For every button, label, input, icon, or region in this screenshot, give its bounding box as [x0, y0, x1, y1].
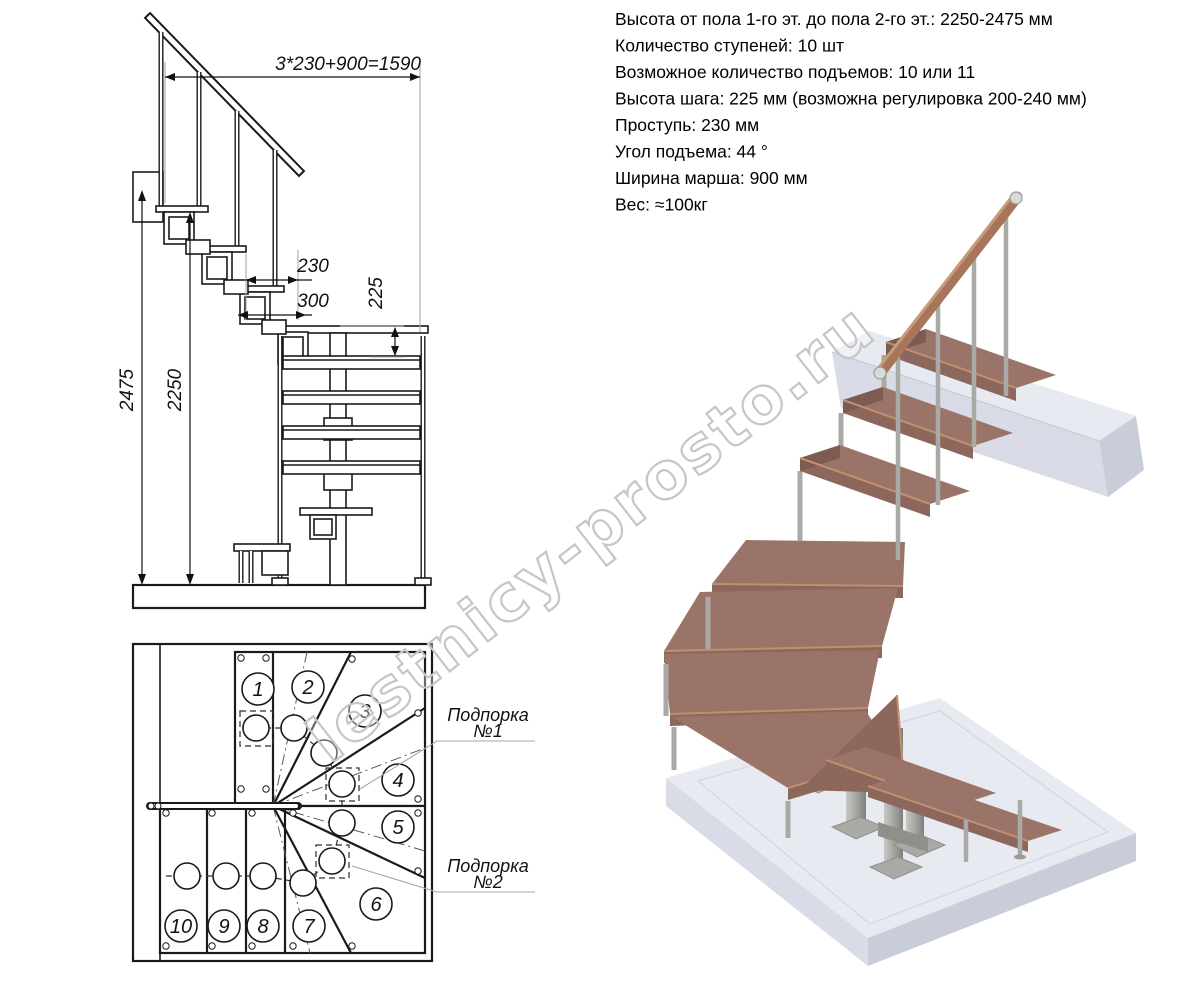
render-3d: [664, 192, 1144, 966]
dimension-height-2250: 2250: [165, 212, 194, 585]
plan-step-number: 9: [218, 916, 229, 938]
plan-step-number: 6: [370, 894, 382, 916]
dim-tread-label: 230: [296, 256, 329, 277]
spec-line: Количество ступеней: 10 шт: [615, 36, 844, 56]
spec-line: Проступь: 230 мм: [615, 115, 759, 135]
module-cascade: [156, 206, 428, 364]
dim-rise-label: 225: [366, 277, 387, 310]
dimension-height-2475: 2475: [117, 190, 146, 585]
spec-line: Угол подъема: 44 °: [615, 142, 768, 162]
plan-step-number: 4: [392, 770, 403, 792]
floor-base: [133, 585, 425, 608]
specs-list: Высота от пола 1-го эт. до пола 2-го эт.…: [615, 9, 1087, 215]
handrail-elevation: [150, 18, 299, 171]
spec-line: Высота от пола 1-го эт. до пола 2-го эт.…: [615, 9, 1053, 29]
plan-step-number: 1: [252, 679, 263, 701]
dim-total-run-label: 3*230+900=1590: [275, 54, 421, 75]
dim-height-min-label: 2250: [165, 368, 186, 412]
spec-line: Высота шага: 225 мм (возможна регулировк…: [615, 89, 1087, 109]
dimension-rise-225: 225: [340, 277, 404, 357]
staircase-drawing-page: 3*230+900=1590 2475 2250 230 300: [0, 0, 1191, 993]
tread-step8: [800, 445, 970, 517]
support1-label-line2: №1: [473, 721, 503, 741]
handrail-end-cap: [874, 367, 886, 379]
plan-handrail: [148, 803, 298, 809]
spec-line: Вес: ≈100кг: [615, 195, 708, 215]
spec-line: Ширина марша: 900 мм: [615, 168, 808, 188]
handrail-top-cap: [1010, 192, 1022, 204]
elevation-view: 3*230+900=1590 2475 2250 230 300: [117, 18, 431, 608]
plan-step-number: 7: [303, 916, 315, 938]
plan-step-number: 2: [301, 677, 313, 699]
lower-flight-elevation: [272, 333, 431, 585]
support2-label-line2: №2: [473, 872, 503, 892]
plan-step-number: 10: [170, 916, 192, 938]
dim-height-max-label: 2475: [117, 368, 138, 412]
center-column: [330, 333, 346, 585]
spec-line: Возможное количество подъемов: 10 или 11: [615, 62, 975, 82]
plan-step-number: 5: [392, 817, 404, 839]
dim-platform-label: 300: [297, 291, 329, 312]
technical-drawing-canvas: 3*230+900=1590 2475 2250 230 300: [0, 0, 1191, 993]
plan-step-number: 8: [257, 916, 268, 938]
